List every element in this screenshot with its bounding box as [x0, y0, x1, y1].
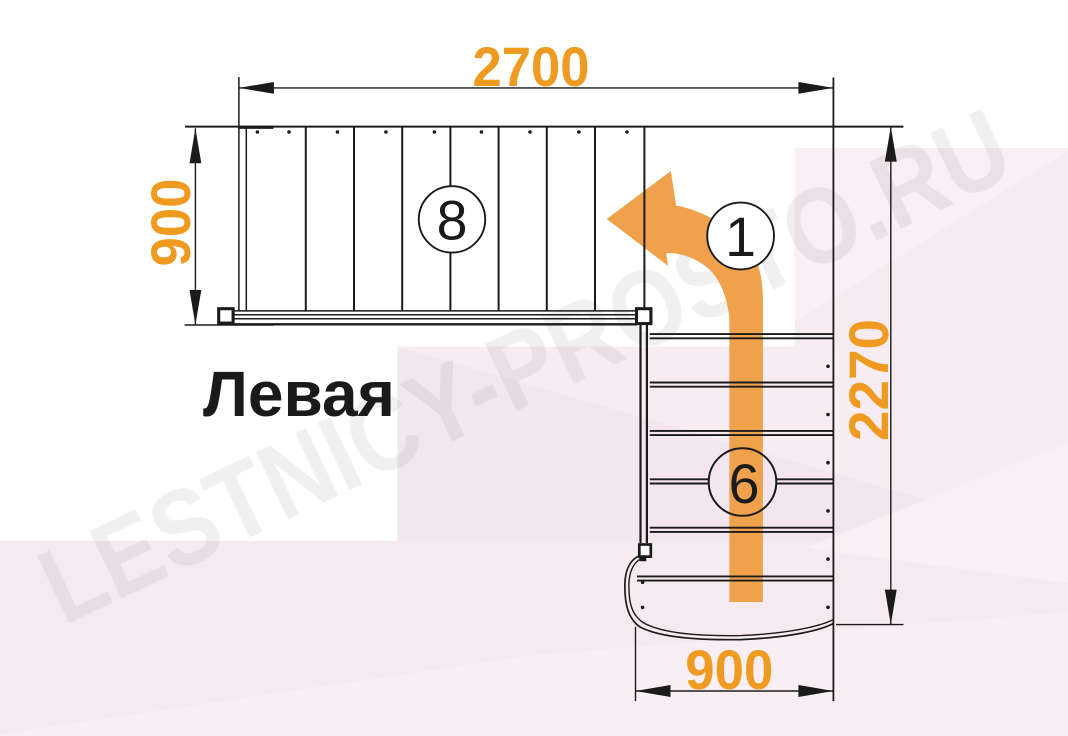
svg-text:8: 8 [437, 190, 468, 252]
svg-text:1: 1 [725, 206, 756, 268]
svg-text:Левая: Левая [203, 358, 395, 430]
svg-text:6: 6 [729, 453, 760, 515]
svg-text:2700: 2700 [473, 36, 590, 98]
svg-text:900: 900 [685, 639, 773, 701]
svg-text:2270: 2270 [838, 319, 900, 441]
svg-text:900: 900 [140, 179, 202, 267]
